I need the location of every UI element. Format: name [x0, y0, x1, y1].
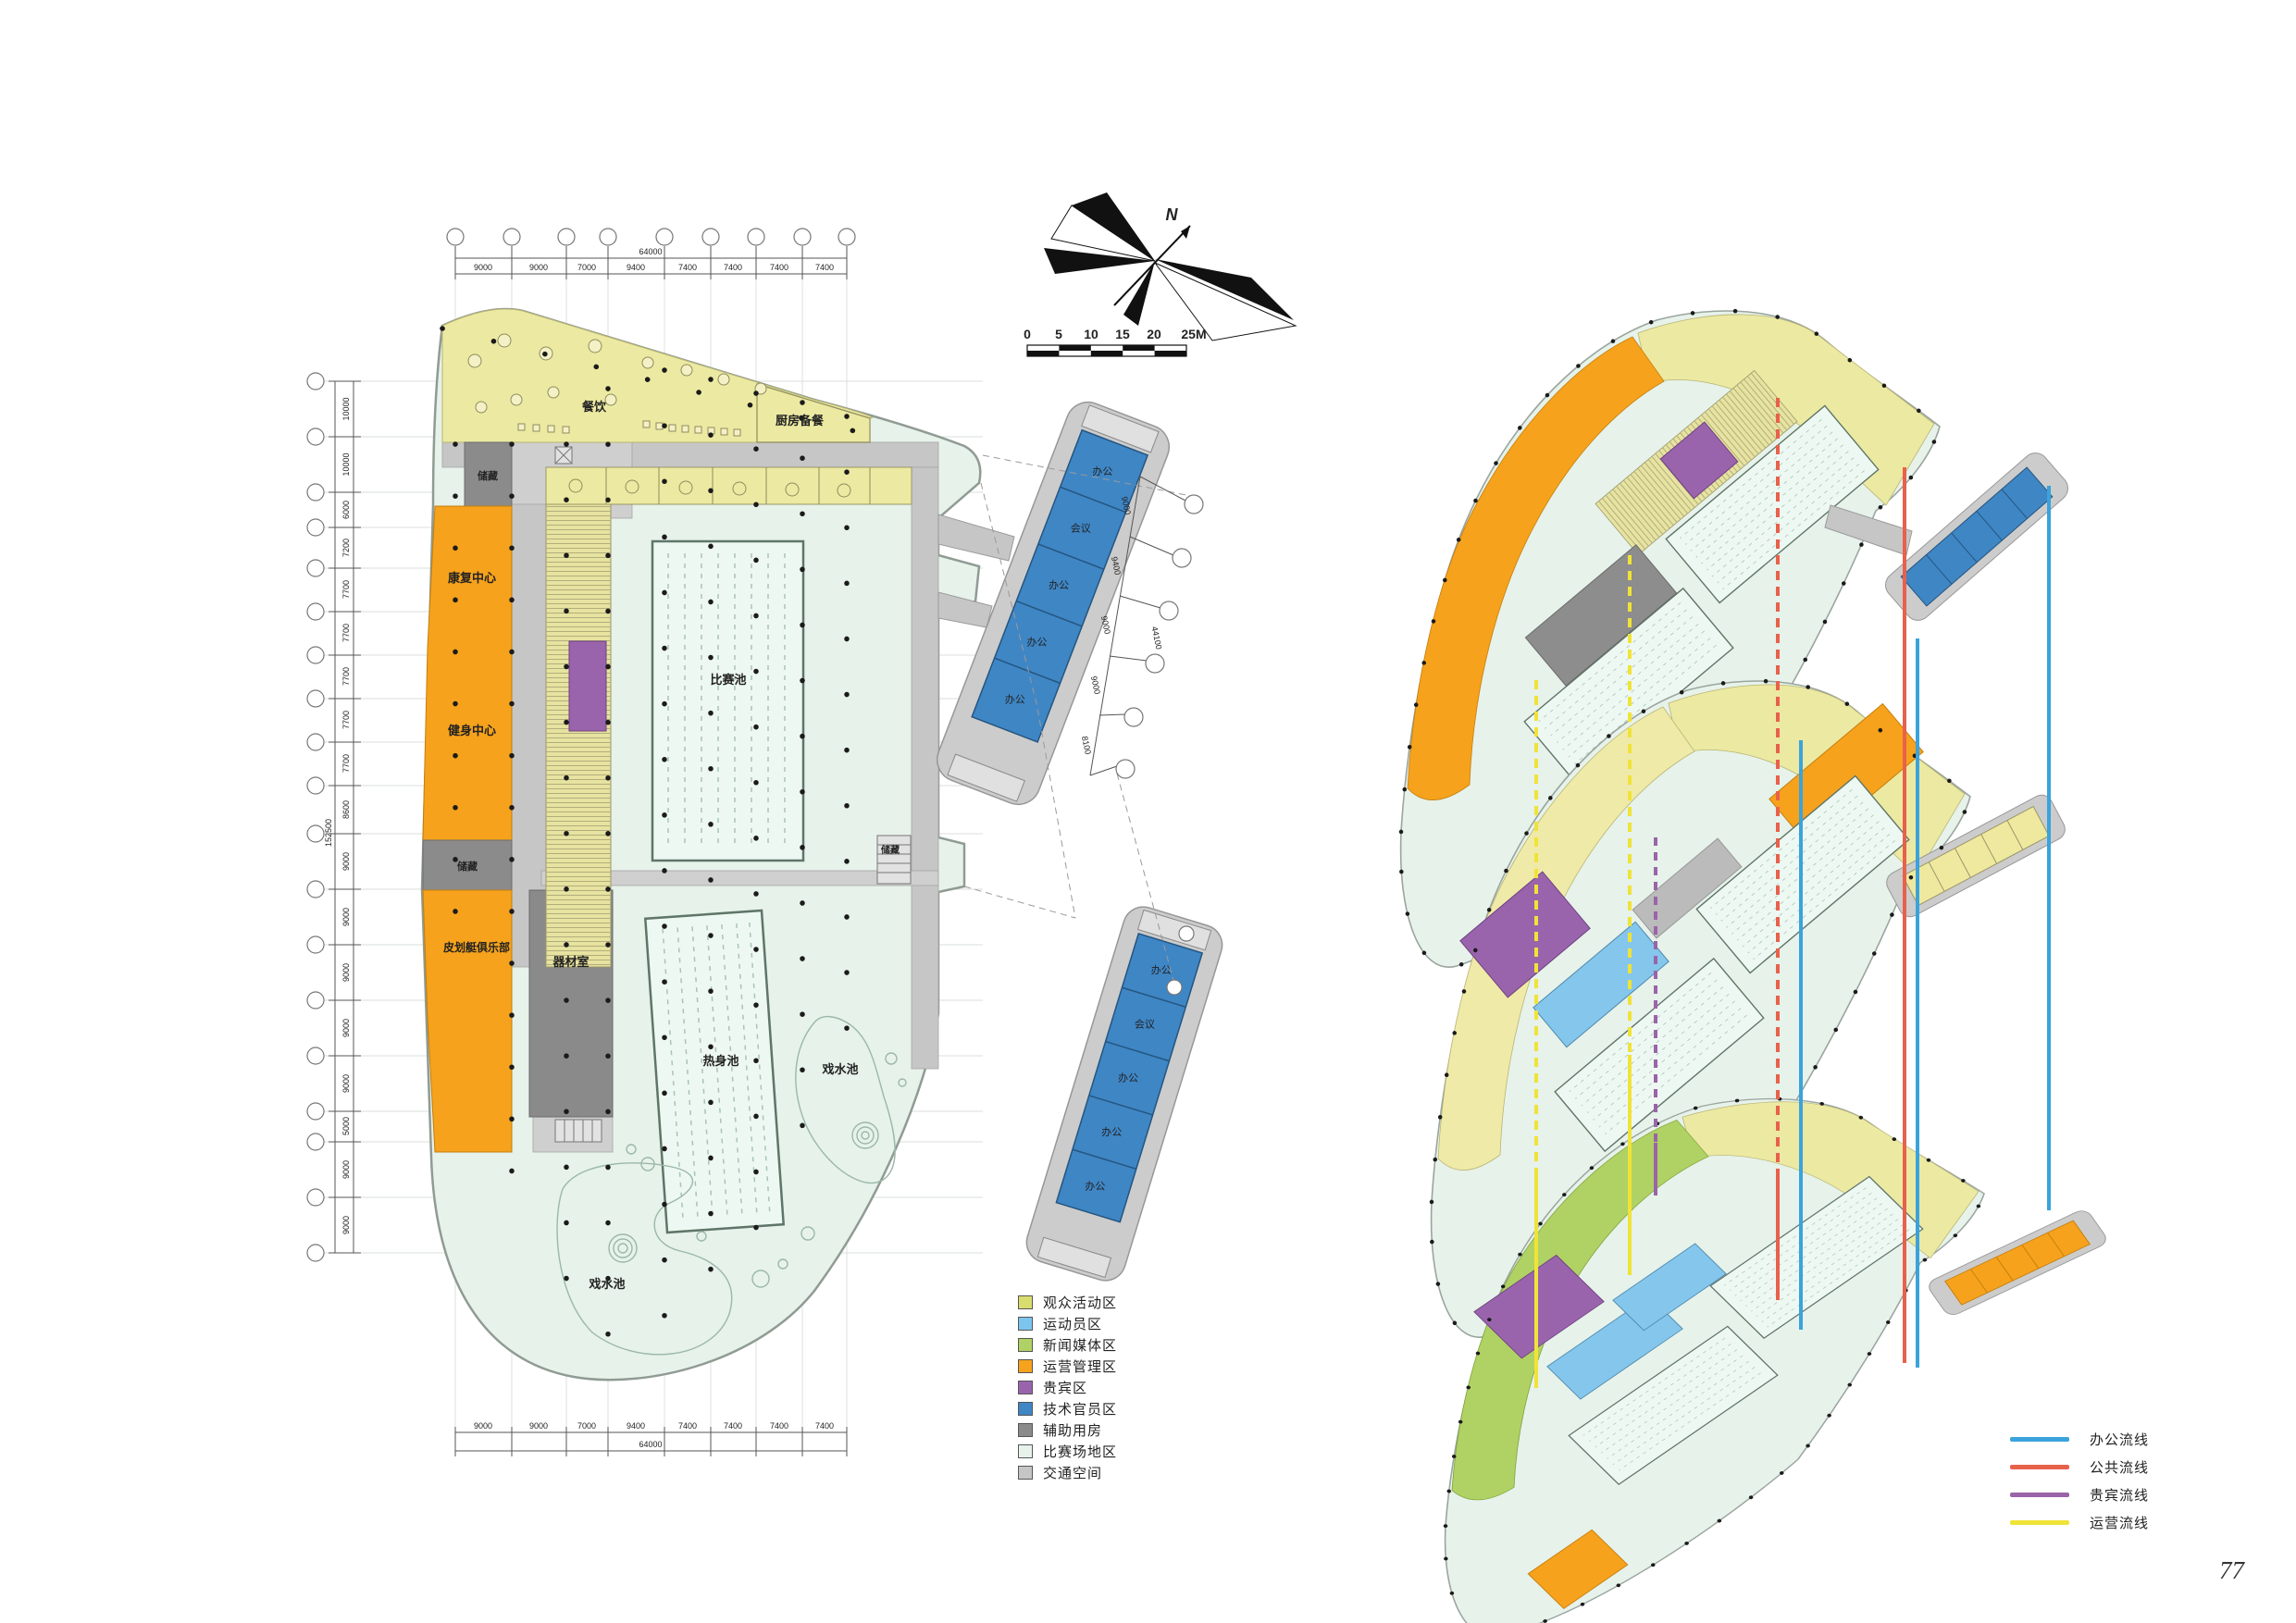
line-label: 公共流线	[2090, 1457, 2149, 1477]
dim-total-top: 64000	[639, 247, 662, 256]
annex-room-label: 会议	[1135, 1018, 1155, 1030]
dim-left: 9000	[341, 1160, 351, 1179]
zone-label: 运动员区	[1043, 1314, 1102, 1333]
scale-tick: 5	[1055, 327, 1062, 341]
zone-label: 观众活动区	[1043, 1293, 1117, 1312]
zone-swatch	[1018, 1359, 1033, 1373]
dim-bottom: 7000	[577, 1421, 596, 1431]
label-equipment: 器材室	[552, 955, 589, 969]
line-swatch	[2010, 1465, 2069, 1469]
label-rehab: 康复中心	[448, 571, 496, 585]
zone-swatch	[1018, 1317, 1033, 1331]
dim-bottom: 9000	[529, 1421, 548, 1431]
label-storage-mid: 储藏	[457, 860, 478, 873]
dim-left: 7700	[341, 667, 351, 686]
zone-label: 运营管理区	[1043, 1357, 1117, 1376]
zone-label: 比赛场地区	[1043, 1442, 1117, 1461]
drawing-canvas: 办公 会议 办公 办公 办公 办公 会议 办公 办公 办公	[0, 0, 2296, 1623]
dim-left: 9000	[341, 1019, 351, 1037]
north-label: N	[1166, 205, 1179, 224]
zone-kayak-club	[423, 890, 512, 1152]
circulation-legend: 办公流线 公共流线 贵宾流线 运营流线	[2010, 1425, 2149, 1536]
dim-bottom: 9000	[474, 1421, 492, 1431]
dim-bottom: 7400	[770, 1421, 788, 1431]
zone-label: 新闻媒体区	[1043, 1335, 1117, 1355]
zone-swatch	[1018, 1423, 1033, 1437]
north-arrow: N	[1044, 192, 1296, 341]
line-label: 贵宾流线	[2090, 1485, 2149, 1505]
legend-row: 贵宾区	[1018, 1377, 1117, 1398]
annex-room-label: 办公	[1118, 1072, 1138, 1084]
warmup-pool	[645, 911, 783, 1233]
scale-bar: 0 5 10 15 20 25M	[1024, 327, 1207, 356]
annex-room-label: 办公	[1026, 637, 1047, 649]
line-label: 运营流线	[2090, 1513, 2149, 1532]
legend-row: 公共流线	[2010, 1453, 2149, 1481]
legend-row: 运营流线	[2010, 1508, 2149, 1536]
dim-left: 7700	[341, 711, 351, 729]
legend-row: 贵宾流线	[2010, 1481, 2149, 1508]
zone-swatch	[1018, 1466, 1033, 1480]
dim-annex: 9000	[1089, 675, 1102, 696]
dim-top: 7400	[724, 263, 742, 272]
dim-total-left: 152500	[324, 819, 333, 847]
label-play-pool-left: 戏水池	[588, 1277, 625, 1291]
label-dining: 餐饮	[581, 400, 607, 414]
annex-room-label: 办公	[1005, 693, 1025, 705]
dim-left: 7700	[341, 754, 351, 773]
dim-bottom: 7400	[815, 1421, 834, 1431]
zone-swatch	[1018, 1338, 1033, 1352]
annex-room-label: 办公	[1049, 579, 1069, 591]
grid-bubbles-top	[447, 229, 855, 245]
line-swatch	[2010, 1437, 2069, 1442]
annex-room-label: 办公	[1151, 964, 1172, 976]
dim-top: 9000	[474, 263, 492, 272]
portfolio-page: 办公 会议 办公 办公 办公 办公 会议 办公 办公 办公	[0, 0, 2296, 1623]
legend-row: 新闻媒体区	[1018, 1334, 1117, 1356]
dim-total-annex: 44100	[1149, 626, 1163, 650]
dim-annex: 8100	[1080, 736, 1093, 756]
legend-row: 观众活动区	[1018, 1292, 1117, 1313]
legend-row: 技术官员区	[1018, 1398, 1117, 1419]
zone-label: 辅助用房	[1043, 1420, 1102, 1440]
dim-total-bottom: 64000	[639, 1440, 662, 1449]
dim-bottom: 7400	[724, 1421, 742, 1431]
label-play-pool-right: 戏水池	[821, 1062, 858, 1076]
zone-swatch	[1018, 1295, 1033, 1309]
legend-row: 运动员区	[1018, 1313, 1117, 1334]
zone-swatch	[1018, 1444, 1033, 1458]
dim-annex: 9000	[1099, 615, 1112, 636]
label-kayak: 皮划艇俱乐部	[442, 940, 510, 954]
zone-swatch	[1018, 1402, 1033, 1416]
label-competition-pool: 比赛池	[710, 673, 746, 687]
competition-pool	[652, 541, 803, 861]
legend-row: 比赛场地区	[1018, 1441, 1117, 1462]
dim-top: 7000	[577, 263, 596, 272]
grandstand	[546, 504, 611, 967]
page-number: 77	[2219, 1556, 2244, 1585]
dim-top: 7400	[678, 263, 697, 272]
label-kitchen: 厨房备餐	[776, 414, 825, 427]
zone-label: 交通空间	[1043, 1463, 1102, 1482]
dim-left: 7700	[341, 624, 351, 642]
scale-tick: 20	[1147, 327, 1161, 341]
legend-row: 交通空间	[1018, 1462, 1117, 1483]
dim-left: 5000	[341, 1117, 351, 1135]
label-warmup-pool: 热身池	[702, 1054, 738, 1068]
dim-left: 10000	[341, 397, 351, 420]
dim-bottom: 9400	[627, 1421, 645, 1431]
line-swatch	[2010, 1493, 2069, 1497]
annex-room-label: 办公	[1092, 465, 1112, 477]
annex-room-label: 办公	[1085, 1180, 1105, 1192]
label-storage-top: 储藏	[478, 469, 498, 482]
dim-left: 9000	[341, 852, 351, 871]
label-fitness: 健身中心	[448, 724, 496, 737]
dim-top: 7400	[770, 263, 788, 272]
zone-label: 技术官员区	[1043, 1399, 1117, 1419]
dim-left: 9000	[341, 1074, 351, 1093]
line-label: 办公流线	[2090, 1430, 2149, 1449]
dim-left: 8600	[341, 800, 351, 819]
zone-label: 贵宾区	[1043, 1378, 1087, 1397]
line-swatch	[2010, 1520, 2069, 1525]
annex-room-label: 办公	[1101, 1126, 1122, 1138]
dim-top: 7400	[815, 263, 834, 272]
dim-left: 6000	[341, 501, 351, 519]
dim-left: 10000	[341, 452, 351, 476]
zone-rehab-fitness	[423, 506, 512, 840]
dim-left: 9000	[341, 908, 351, 926]
legend-row: 辅助用房	[1018, 1419, 1117, 1441]
scale-tick: 0	[1024, 327, 1031, 341]
axonometric-diagram	[1401, 311, 2110, 1623]
dim-top: 9000	[529, 263, 548, 272]
dim-bottom: 7400	[678, 1421, 697, 1431]
zone-swatch	[1018, 1381, 1033, 1394]
zone-room-row	[546, 467, 912, 504]
vip-box	[569, 641, 606, 731]
grid-bubbles-left	[307, 373, 324, 1261]
main-floor-plan: 办公 会议 办公 办公 办公 办公 会议 办公 办公 办公	[307, 229, 1227, 1456]
zone-legend: 观众活动区 运动员区 新闻媒体区 运营管理区 贵宾区 技术官员区 辅助用房 比赛…	[1018, 1292, 1117, 1483]
legend-row: 运营管理区	[1018, 1356, 1117, 1377]
scale-tick: 25M	[1181, 327, 1206, 341]
dim-left: 7700	[341, 580, 351, 599]
annex-room-label: 会议	[1071, 523, 1091, 535]
annex-bottom: 办公 会议 办公 办公 办公	[1022, 902, 1227, 1286]
legend-row: 办公流线	[2010, 1425, 2149, 1453]
dim-left: 9000	[341, 963, 351, 982]
scale-tick: 10	[1084, 327, 1098, 341]
label-storage-right: 储藏	[880, 844, 900, 856]
dim-left: 9000	[341, 1216, 351, 1234]
dim-left: 7200	[341, 539, 351, 557]
dim-top: 9400	[627, 263, 645, 272]
scale-tick: 15	[1115, 327, 1130, 341]
